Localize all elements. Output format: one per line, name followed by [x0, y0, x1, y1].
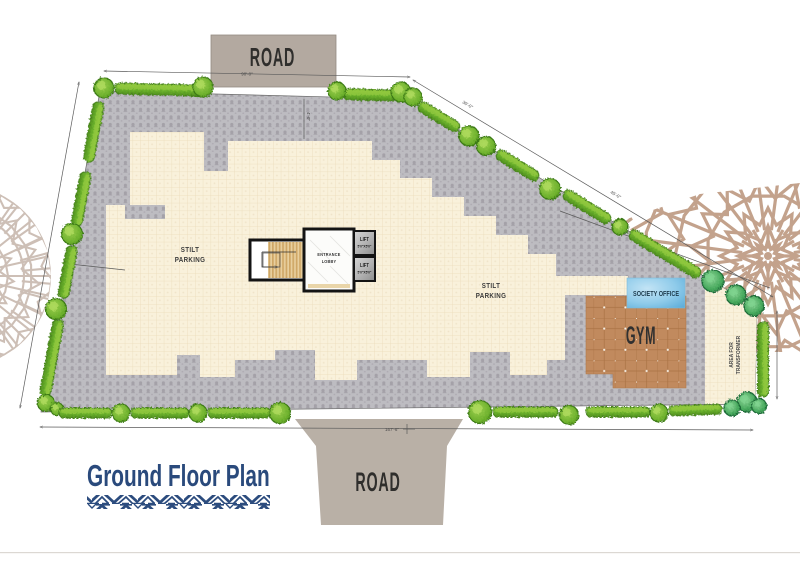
svg-text:LOBBY: LOBBY: [322, 259, 337, 265]
svg-text:LIFT: LIFT: [360, 263, 369, 268]
svg-text:ROAD: ROAD: [355, 466, 400, 497]
svg-text:PARKING: PARKING: [175, 257, 206, 265]
svg-text:5'0"X5'0": 5'0"X5'0": [358, 244, 372, 248]
svg-text:Ground Floor Plan: Ground Floor Plan: [87, 458, 270, 493]
svg-text:SOCIETY OFFICE: SOCIETY OFFICE: [633, 290, 680, 298]
svg-text:PARKING: PARKING: [476, 293, 507, 301]
svg-text:90'-0": 90'-0": [241, 72, 253, 77]
svg-text:ENTRANCE: ENTRANCE: [317, 252, 340, 258]
svg-text:ROAD: ROAD: [250, 44, 295, 73]
svg-text:4'-0": 4'-0": [306, 112, 311, 121]
svg-text:TRANSFORMER: TRANSFORMER: [736, 336, 742, 375]
svg-text:167'-6": 167'-6": [385, 427, 399, 432]
svg-text:STILT: STILT: [181, 247, 200, 255]
svg-text:STILT: STILT: [482, 283, 501, 291]
svg-text:LIFT: LIFT: [360, 237, 369, 242]
svg-text:AREA FOR: AREA FOR: [729, 342, 735, 368]
svg-text:GYM: GYM: [626, 322, 656, 350]
svg-text:5'0"X5'0": 5'0"X5'0": [358, 270, 372, 274]
